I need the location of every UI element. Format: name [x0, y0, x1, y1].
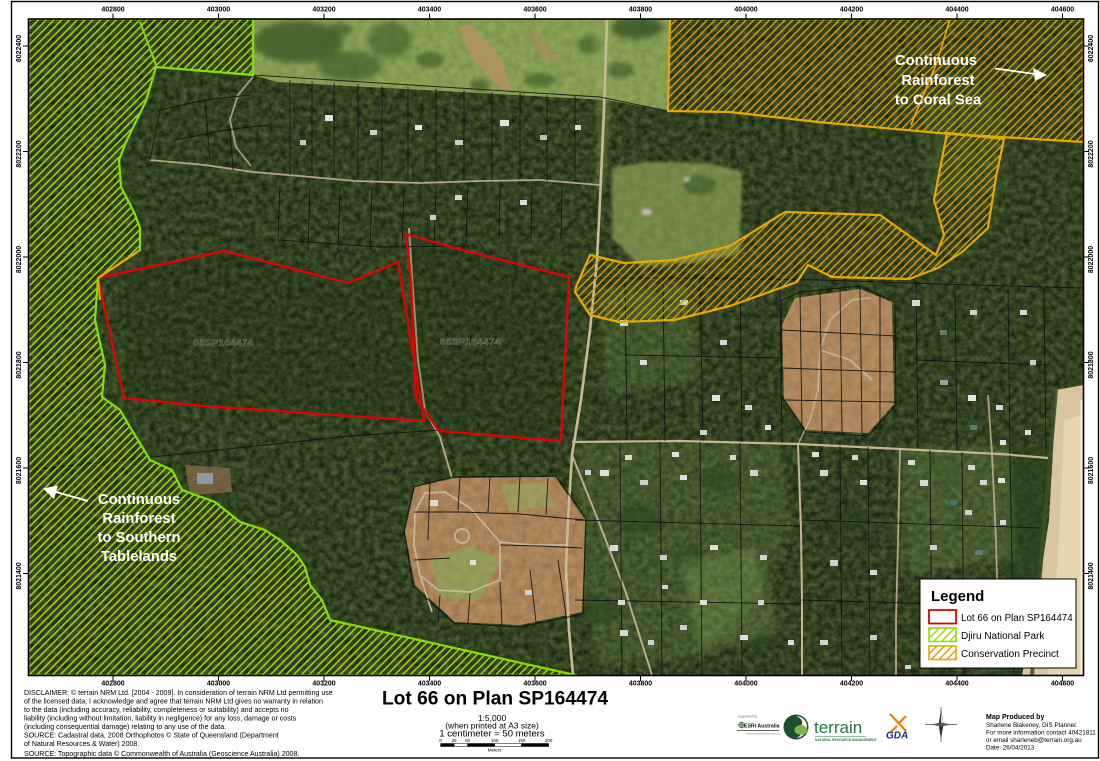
svg-text:www.esriaustralia.com.au: www.esriaustralia.com.au	[746, 732, 780, 736]
svg-text:404200: 404200	[840, 7, 863, 14]
svg-text:8022400: 8022400	[16, 35, 23, 62]
svg-text:8021400: 8021400	[16, 562, 23, 589]
svg-text:Map Produced by: Map Produced by	[986, 714, 1044, 721]
svg-text:GDA: GDA	[886, 731, 908, 742]
svg-text:403400: 403400	[418, 7, 441, 14]
svg-text:Conservation Precinct: Conservation Precinct	[961, 649, 1059, 660]
svg-text:404400: 404400	[945, 7, 968, 14]
svg-text:ESRI Australia: ESRI Australia	[744, 723, 780, 729]
svg-text:to the data (including accurac: to the data (including accuracy, reliabi…	[24, 707, 289, 714]
svg-text:403800: 403800	[629, 7, 652, 14]
svg-text:25: 25	[452, 738, 458, 743]
svg-text:Meters: Meters	[488, 748, 503, 753]
svg-text:DISCLAIMER: © terrain NRM Ltd.: DISCLAIMER: © terrain NRM Ltd. [2004 - 2…	[24, 689, 333, 697]
svg-text:Lot 66 on Plan SP164474: Lot 66 on Plan SP164474	[961, 613, 1073, 624]
svg-text:Lot 66 on Plan SP164474: Lot 66 on Plan SP164474	[382, 689, 608, 710]
svg-text:Sharlene Blakeney, GIS Planner: Sharlene Blakeney, GIS Planner.	[986, 722, 1078, 729]
svg-text:(including consequential damag: (including consequential damage) relatin…	[24, 724, 226, 731]
svg-text:403200: 403200	[312, 681, 335, 688]
svg-text:Legend: Legend	[931, 588, 984, 605]
svg-text:404000: 404000	[734, 7, 757, 14]
svg-text:8021600: 8021600	[1088, 457, 1095, 484]
svg-text:8022200: 8022200	[16, 140, 23, 167]
svg-text:Supported by: Supported by	[738, 715, 757, 719]
svg-text:terrain: terrain	[814, 718, 862, 737]
svg-text:403800: 403800	[629, 681, 652, 688]
svg-text:Tablelands: Tablelands	[101, 549, 177, 565]
svg-text:150: 150	[518, 738, 526, 743]
svg-text:8021800: 8021800	[1088, 351, 1095, 378]
svg-text:66SP164474: 66SP164474	[440, 336, 501, 348]
svg-text:100: 100	[491, 738, 499, 743]
svg-text:Rainforest: Rainforest	[901, 73, 974, 89]
svg-text:403600: 403600	[523, 7, 546, 14]
svg-text:403000: 403000	[207, 681, 230, 688]
svg-text:8022400: 8022400	[1088, 35, 1095, 62]
svg-text:of the licensed data, I acknow: of the licensed data, I acknowledge and …	[24, 698, 323, 705]
svg-text:66SP164474: 66SP164474	[193, 337, 254, 349]
svg-text:50: 50	[465, 738, 471, 743]
svg-text:SOURCE: Cadastral data, 2008: SOURCE: Cadastral data, 2008 Orthophotos…	[24, 732, 279, 740]
svg-text:403600: 403600	[523, 681, 546, 688]
svg-text:402800: 402800	[101, 7, 124, 14]
svg-text:404200: 404200	[840, 681, 863, 688]
svg-text:Continuous: Continuous	[98, 492, 180, 508]
svg-text:Djiru National Park: Djiru National Park	[961, 631, 1045, 642]
svg-text:8021600: 8021600	[16, 457, 23, 484]
svg-text:403400: 403400	[418, 681, 441, 688]
svg-text:404600: 404600	[1051, 681, 1074, 688]
svg-text:NATURAL RESOURCE MANAGEMENT: NATURAL RESOURCE MANAGEMENT	[815, 738, 878, 742]
svg-text:Date: 26/04/2013: Date: 26/04/2013	[986, 745, 1035, 752]
svg-text:to Coral Sea: to Coral Sea	[895, 93, 982, 109]
svg-text:403000: 403000	[207, 7, 230, 14]
svg-text:Rainforest: Rainforest	[102, 511, 175, 527]
svg-text:8022000: 8022000	[16, 246, 23, 273]
svg-text:402800: 402800	[101, 681, 124, 688]
svg-text:404600: 404600	[1051, 7, 1074, 14]
svg-text:liability (including without l: liability (including without limitation,…	[24, 715, 297, 722]
svg-text:8022200: 8022200	[1088, 140, 1095, 167]
svg-text:8022000: 8022000	[1088, 246, 1095, 273]
svg-text:SOURCE: Topographic data © Co: SOURCE: Topographic data © Commonwealth …	[24, 750, 299, 758]
svg-text:200: 200	[545, 738, 553, 743]
svg-text:For more information contact 4: For more information contact 40421811	[986, 730, 1096, 737]
svg-text:to Southern: to Southern	[97, 530, 180, 546]
svg-text:8021400: 8021400	[1088, 562, 1095, 589]
svg-text:404400: 404400	[945, 681, 968, 688]
svg-text:Continuous: Continuous	[895, 53, 977, 69]
svg-text:404000: 404000	[734, 681, 757, 688]
svg-text:403200: 403200	[312, 7, 335, 14]
svg-text:8021800: 8021800	[16, 351, 23, 378]
svg-text:or email sharleneb@terrain.org: or email sharleneb@terrain.org.au	[986, 737, 1082, 744]
svg-text:of Natural Resources & Water): of Natural Resources & Water) 2008.	[24, 741, 139, 748]
